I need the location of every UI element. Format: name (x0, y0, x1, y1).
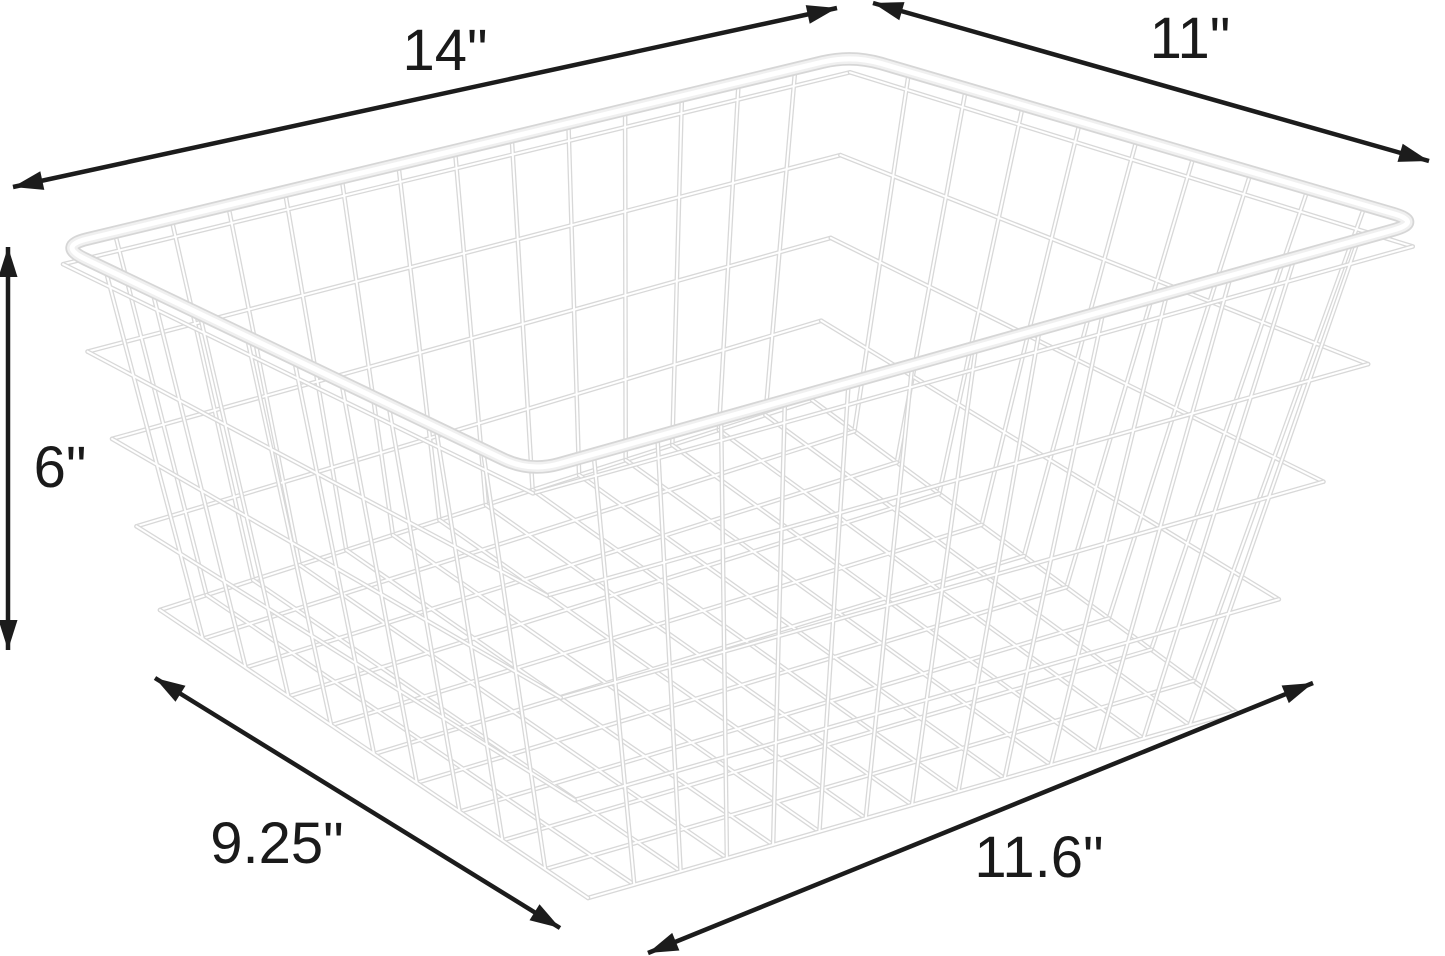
arrowhead-icon (0, 247, 18, 277)
wire-basket-illustration (63, 59, 1413, 898)
dimension-label-bottom-width: 11.6" (974, 825, 1103, 890)
arrowhead-icon (648, 933, 679, 953)
arrowhead-icon (530, 904, 561, 928)
arrowhead-icon (806, 5, 837, 24)
arrowhead-icon (1398, 144, 1430, 162)
dimension-label-bottom-depth: 9.25" (210, 811, 343, 876)
dimension-label-top-depth: 11" (1150, 6, 1231, 71)
arrowhead-icon (13, 171, 44, 190)
dimension-label-height: 6" (34, 435, 87, 500)
arrowhead-icon (0, 620, 18, 650)
arrowhead-icon (1282, 683, 1313, 703)
arrowhead-icon (155, 678, 186, 702)
dimension-arrow-height (0, 247, 18, 650)
arrowhead-icon (873, 2, 905, 20)
dimension-label-top-width: 14" (402, 18, 487, 83)
product-dimension-diagram: 14" 11" 6" 9.25" 11.6" (0, 0, 1445, 956)
dimension-diagram-canvas: 14" 11" 6" 9.25" 11.6" (0, 0, 1445, 956)
